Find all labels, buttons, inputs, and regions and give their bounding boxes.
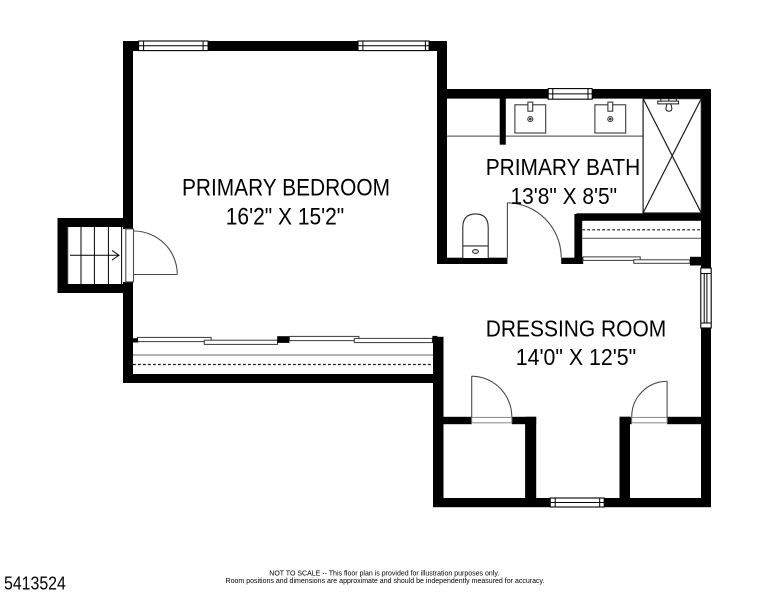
svg-text:PRIMARY BEDROOM: PRIMARY BEDROOM — [182, 175, 390, 202]
svg-text:PRIMARY BATH: PRIMARY BATH — [486, 154, 641, 180]
svg-text:Room positions and dimensions: Room positions and dimensions are approx… — [226, 578, 545, 585]
svg-text:DRESSING ROOM: DRESSING ROOM — [486, 316, 667, 342]
svg-text:5413524: 5413524 — [4, 574, 66, 594]
svg-text:14'0" X 12'5": 14'0" X 12'5" — [516, 344, 636, 370]
svg-text:NOT TO SCALE -- This floor pla: NOT TO SCALE -- This floor plan is provi… — [269, 570, 499, 577]
svg-text:13'8" X 8'5": 13'8" X 8'5" — [511, 183, 618, 209]
svg-text:16'2" X 15'2": 16'2" X 15'2" — [226, 203, 345, 230]
